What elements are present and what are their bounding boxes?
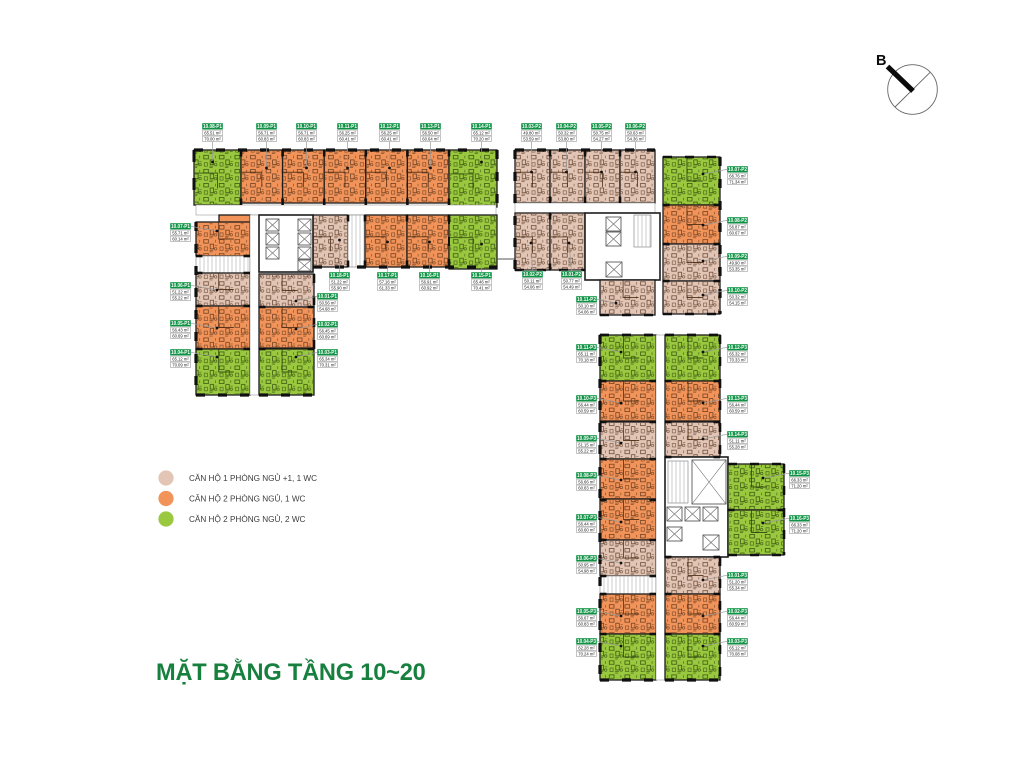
svg-text:51.11 m²: 51.11 m² bbox=[729, 439, 746, 445]
svg-text:10.07-P1: 10.07-P1 bbox=[171, 224, 190, 230]
svg-text:65.51 m²: 65.51 m² bbox=[204, 131, 221, 137]
svg-text:65.12 m²: 65.12 m² bbox=[473, 131, 490, 137]
svg-text:51.15 m²: 51.15 m² bbox=[578, 443, 595, 449]
svg-text:10.04-P1: 10.04-P1 bbox=[171, 350, 190, 356]
svg-text:60.83 m²: 60.83 m² bbox=[578, 486, 595, 492]
svg-text:54.68 m²: 54.68 m² bbox=[319, 307, 336, 313]
svg-text:66.33 m²: 66.33 m² bbox=[791, 478, 808, 484]
svg-text:10.04-P2: 10.04-P2 bbox=[557, 124, 576, 130]
svg-text:60.69 m²: 60.69 m² bbox=[172, 334, 189, 340]
svg-text:66.33 m²: 66.33 m² bbox=[791, 523, 808, 529]
svg-text:50.63 m²: 50.63 m² bbox=[627, 131, 644, 137]
svg-text:55.22 m²: 55.22 m² bbox=[172, 296, 189, 302]
svg-text:56.67 m²: 56.67 m² bbox=[578, 616, 595, 622]
svg-text:CĂN HỘ 1 PHÒNG NGỦ +1, 1 WC: CĂN HỘ 1 PHÒNG NGỦ +1, 1 WC bbox=[189, 472, 317, 483]
svg-text:70.09 m²: 70.09 m² bbox=[172, 363, 189, 369]
svg-text:10.12-P1: 10.12-P1 bbox=[380, 124, 399, 130]
svg-text:10.16-P1: 10.16-P1 bbox=[420, 273, 439, 279]
svg-text:10.08-P3: 10.08-P3 bbox=[577, 473, 596, 479]
svg-text:65.12 m²: 65.12 m² bbox=[729, 646, 746, 652]
svg-text:10.05-P2: 10.05-P2 bbox=[592, 124, 611, 130]
svg-text:56.44 m²: 56.44 m² bbox=[729, 616, 746, 622]
svg-text:65.32 m²: 65.32 m² bbox=[729, 352, 746, 358]
svg-text:10.01-P3: 10.01-P3 bbox=[728, 573, 747, 579]
svg-text:60.92 m²: 60.92 m² bbox=[421, 286, 438, 292]
svg-text:10.13-P1: 10.13-P1 bbox=[421, 124, 440, 130]
svg-text:10.15-P3: 10.15-P3 bbox=[790, 471, 809, 477]
svg-text:70.41 m²: 70.41 m² bbox=[473, 286, 490, 292]
svg-text:65.12 m²: 65.12 m² bbox=[172, 357, 189, 363]
svg-text:50.56 m²: 50.56 m² bbox=[319, 301, 336, 307]
svg-text:10.13-P3: 10.13-P3 bbox=[728, 396, 747, 402]
svg-text:60.83 m²: 60.83 m² bbox=[578, 622, 595, 628]
svg-text:56.91 m²: 56.91 m² bbox=[421, 280, 438, 286]
svg-text:10.15-P1: 10.15-P1 bbox=[472, 273, 491, 279]
svg-text:56.45 m²: 56.45 m² bbox=[319, 329, 336, 335]
svg-text:10.18-P1: 10.18-P1 bbox=[330, 273, 349, 279]
svg-text:60.59 m²: 60.59 m² bbox=[729, 622, 746, 628]
svg-text:60.14 m²: 60.14 m² bbox=[172, 237, 189, 243]
svg-text:10.08-P1: 10.08-P1 bbox=[203, 124, 222, 130]
svg-text:50.11 m²: 50.11 m² bbox=[524, 279, 541, 285]
svg-text:50.10 m²: 50.10 m² bbox=[578, 304, 595, 310]
svg-text:55.90 m²: 55.90 m² bbox=[331, 286, 348, 292]
svg-text:71.20 m²: 71.20 m² bbox=[791, 484, 808, 490]
svg-text:10.01-P1: 10.01-P1 bbox=[318, 294, 337, 300]
svg-text:54.06 m²: 54.06 m² bbox=[578, 310, 595, 316]
svg-text:65.46 m²: 65.46 m² bbox=[473, 280, 490, 286]
svg-text:10.17-P1: 10.17-P1 bbox=[378, 273, 397, 279]
svg-text:55.22 m²: 55.22 m² bbox=[578, 449, 595, 455]
svg-text:10.08-P2: 10.08-P2 bbox=[728, 218, 747, 224]
svg-text:51.22 m²: 51.22 m² bbox=[331, 280, 348, 286]
svg-text:66.76 m²: 66.76 m² bbox=[729, 174, 746, 180]
svg-text:57.16 m²: 57.16 m² bbox=[379, 280, 396, 286]
svg-text:56.43 m²: 56.43 m² bbox=[172, 328, 189, 334]
svg-text:56.44 m²: 56.44 m² bbox=[729, 403, 746, 409]
svg-text:54.06 m²: 54.06 m² bbox=[524, 285, 541, 291]
svg-text:56.44 m²: 56.44 m² bbox=[578, 403, 595, 409]
svg-text:CĂN HỘ 2 PHÒNG NGỦ, 2 WC: CĂN HỘ 2 PHÒNG NGỦ, 2 WC bbox=[189, 513, 306, 524]
svg-text:MẶT BẰNG TẦNG 10~20: MẶT BẰNG TẦNG 10~20 bbox=[156, 658, 426, 686]
svg-text:10.11-P2: 10.11-P2 bbox=[577, 297, 596, 303]
svg-text:56.44 m²: 56.44 m² bbox=[578, 522, 595, 528]
svg-text:50.32 m²: 50.32 m² bbox=[558, 131, 575, 137]
svg-text:70.08 m²: 70.08 m² bbox=[729, 652, 746, 658]
svg-text:10.11-P1: 10.11-P1 bbox=[338, 124, 357, 130]
svg-text:70.18 m²: 70.18 m² bbox=[578, 358, 595, 364]
svg-text:50.95 m²: 50.95 m² bbox=[578, 563, 595, 569]
svg-text:54.49 m²: 54.49 m² bbox=[563, 285, 580, 291]
svg-text:70.33 m²: 70.33 m² bbox=[729, 358, 746, 364]
svg-text:70.24 m²: 70.24 m² bbox=[578, 652, 595, 658]
svg-text:56.87 m²: 56.87 m² bbox=[729, 225, 746, 231]
svg-text:10.14-P1: 10.14-P1 bbox=[472, 124, 491, 130]
svg-text:50.32 m²: 50.32 m² bbox=[729, 295, 746, 301]
svg-text:49.80 m²: 49.80 m² bbox=[523, 131, 540, 137]
svg-text:56.25 m²: 56.25 m² bbox=[381, 131, 398, 137]
svg-text:56.50 m²: 56.50 m² bbox=[422, 131, 439, 137]
svg-text:10.06-P1: 10.06-P1 bbox=[171, 283, 190, 289]
svg-text:10.02-P3: 10.02-P3 bbox=[728, 609, 747, 615]
svg-text:60.59 m²: 60.59 m² bbox=[729, 409, 746, 415]
svg-text:10.02-P1: 10.02-P1 bbox=[318, 322, 337, 328]
svg-text:55.28 m²: 55.28 m² bbox=[729, 445, 746, 451]
svg-text:10.03-P2: 10.03-P2 bbox=[522, 124, 541, 130]
svg-text:56.66 m²: 56.66 m² bbox=[578, 480, 595, 486]
svg-text:60.60 m²: 60.60 m² bbox=[578, 528, 595, 534]
svg-text:54.98 m²: 54.98 m² bbox=[578, 569, 595, 575]
svg-text:65.11 m²: 65.11 m² bbox=[578, 352, 595, 358]
svg-text:50.77 m²: 50.77 m² bbox=[563, 279, 580, 285]
svg-text:49.90 m²: 49.90 m² bbox=[729, 261, 746, 267]
svg-text:10.12-P3: 10.12-P3 bbox=[728, 345, 747, 351]
svg-text:62.28 m²: 62.28 m² bbox=[578, 646, 595, 652]
svg-text:10.11-P3: 10.11-P3 bbox=[577, 345, 596, 351]
svg-text:10.09-P3: 10.09-P3 bbox=[577, 436, 596, 442]
svg-text:10.02-P2: 10.02-P2 bbox=[523, 272, 542, 278]
svg-text:54.15 m²: 54.15 m² bbox=[729, 301, 746, 307]
svg-text:10.10-P1: 10.10-P1 bbox=[297, 124, 316, 130]
svg-text:56.71 m²: 56.71 m² bbox=[258, 131, 275, 137]
svg-text:10.03-P1: 10.03-P1 bbox=[318, 350, 337, 356]
svg-text:10.05-P1: 10.05-P1 bbox=[171, 321, 190, 327]
svg-text:B: B bbox=[876, 53, 886, 69]
svg-text:61.33 m²: 61.33 m² bbox=[379, 286, 396, 292]
svg-text:56.71 m²: 56.71 m² bbox=[298, 131, 315, 137]
svg-text:65.34 m²: 65.34 m² bbox=[319, 357, 336, 363]
svg-text:10.06-P2: 10.06-P2 bbox=[626, 124, 645, 130]
svg-text:60.59 m²: 60.59 m² bbox=[578, 409, 595, 415]
svg-text:10.14-P3: 10.14-P3 bbox=[728, 432, 747, 438]
svg-text:53.35 m²: 53.35 m² bbox=[729, 267, 746, 273]
svg-text:10.10-P2: 10.10-P2 bbox=[728, 288, 747, 294]
svg-text:10.04-P3: 10.04-P3 bbox=[577, 639, 596, 645]
svg-text:10.03-P3: 10.03-P3 bbox=[728, 639, 747, 645]
svg-text:10.16-P3: 10.16-P3 bbox=[790, 516, 809, 522]
svg-text:10.09-P2: 10.09-P2 bbox=[728, 254, 747, 260]
svg-text:71.20 m²: 71.20 m² bbox=[791, 529, 808, 535]
svg-text:10.07-P3: 10.07-P3 bbox=[577, 515, 596, 521]
svg-text:CĂN HỘ 2 PHÒNG NGỦ, 1 WC: CĂN HỘ 2 PHÒNG NGỦ, 1 WC bbox=[189, 492, 306, 503]
svg-text:10.05-P3: 10.05-P3 bbox=[577, 609, 596, 615]
svg-text:50.75 m²: 50.75 m² bbox=[593, 131, 610, 137]
svg-text:55.34 m²: 55.34 m² bbox=[729, 586, 746, 592]
svg-text:71.34 m²: 71.34 m² bbox=[729, 180, 746, 186]
svg-text:10.07-P2: 10.07-P2 bbox=[728, 167, 747, 173]
svg-text:10.10-P3: 10.10-P3 bbox=[577, 396, 596, 402]
svg-text:10.01-P2: 10.01-P2 bbox=[562, 272, 581, 278]
svg-text:55.71 m²: 55.71 m² bbox=[172, 231, 189, 237]
svg-text:51.20 m²: 51.20 m² bbox=[729, 580, 746, 586]
svg-text:56.25 m²: 56.25 m² bbox=[339, 131, 356, 137]
svg-text:60.69 m²: 60.69 m² bbox=[319, 335, 336, 341]
svg-text:10.09-P1: 10.09-P1 bbox=[257, 124, 276, 130]
svg-text:51.22 m²: 51.22 m² bbox=[172, 290, 189, 296]
svg-text:70.31 m²: 70.31 m² bbox=[319, 363, 336, 369]
svg-text:10.06-P3: 10.06-P3 bbox=[577, 556, 596, 562]
svg-text:60.67 m²: 60.67 m² bbox=[729, 231, 746, 237]
